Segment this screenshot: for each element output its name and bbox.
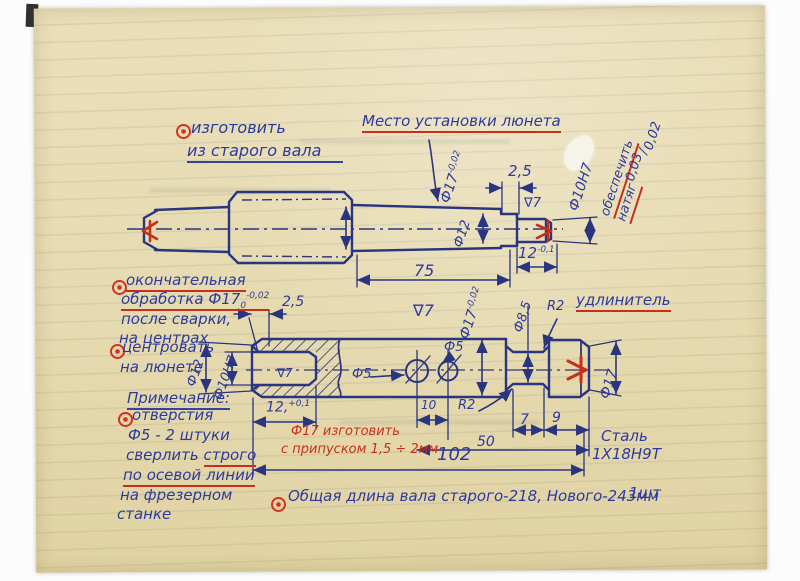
dim-50: 50 (477, 434, 495, 450)
red-stamp-dot (176, 124, 191, 139)
dim-d5-left: Ф5 (352, 368, 371, 383)
steel-label-line1: Сталь (601, 428, 648, 445)
scanned-drawing-sheet: изготовить из старого вала Место установ… (0, 0, 800, 581)
lunette-note: Место установки люнета (362, 112, 561, 133)
top-red-center-marks (143, 221, 551, 241)
allowance-note-line1: Ф17 изготовить (291, 425, 400, 440)
dim-d5-right: Ф5 (444, 341, 463, 356)
total-length-note: Общая длина вала старого-218, Нового-243… (288, 488, 659, 505)
dim-9: 9 (552, 410, 561, 426)
finish-mark-top: ∇7 (524, 197, 541, 212)
holes-note-line1: отверстия (132, 407, 213, 424)
holes-note-line5: на фрезерном (120, 487, 232, 504)
dim-10: 10 (421, 399, 436, 413)
final-note-line1: окончательная (126, 271, 246, 292)
finish-mark-bore: ∇7 (277, 367, 293, 381)
dim-r2-bottom: R2 (458, 399, 475, 414)
final-note-line3: после сварки, (121, 311, 231, 328)
note-make-line2: из старого вала (187, 141, 343, 163)
red-stamp-dot (271, 497, 286, 512)
extension-label: удлинитель (576, 291, 671, 312)
dim-7: 7 (520, 412, 529, 428)
dim-2-5-bottom: 2,5 (282, 294, 304, 310)
bottom-hatching (254, 340, 340, 396)
dim-r2-top: R2 (547, 300, 564, 315)
red-stamp-dot (118, 412, 133, 427)
dim-12-top: 12-0,1 (518, 245, 555, 262)
dim-2-5-top: 2,5 (508, 163, 532, 180)
centering-note-line1: центровать (122, 339, 214, 356)
quantity-note: 1шт (629, 485, 661, 502)
holes-note-line3: сверлить строго (126, 447, 256, 464)
holes-note-line4: по осевой линии (123, 466, 255, 487)
top-dimension-lines (346, 140, 597, 287)
steel-label-line2: 1Х18Н9Т (592, 446, 661, 463)
finish-mark-bottom: ∇7 (413, 302, 434, 320)
top-shaft-outline (144, 192, 551, 263)
allowance-note-line2: с припуском 1,5 ÷ 2мм (281, 443, 438, 458)
holes-note-line2: Ф5 - 2 штуки (128, 427, 230, 444)
dim-75: 75 (414, 262, 434, 280)
dim-12-depth: 12,+0,1 (266, 399, 310, 416)
final-note-line2: обработка Ф170-0,02 (121, 290, 269, 311)
holes-note-line6: станке (117, 506, 171, 523)
note-make-line1: изготовить (191, 119, 286, 137)
dim-102: 102 (437, 445, 471, 466)
